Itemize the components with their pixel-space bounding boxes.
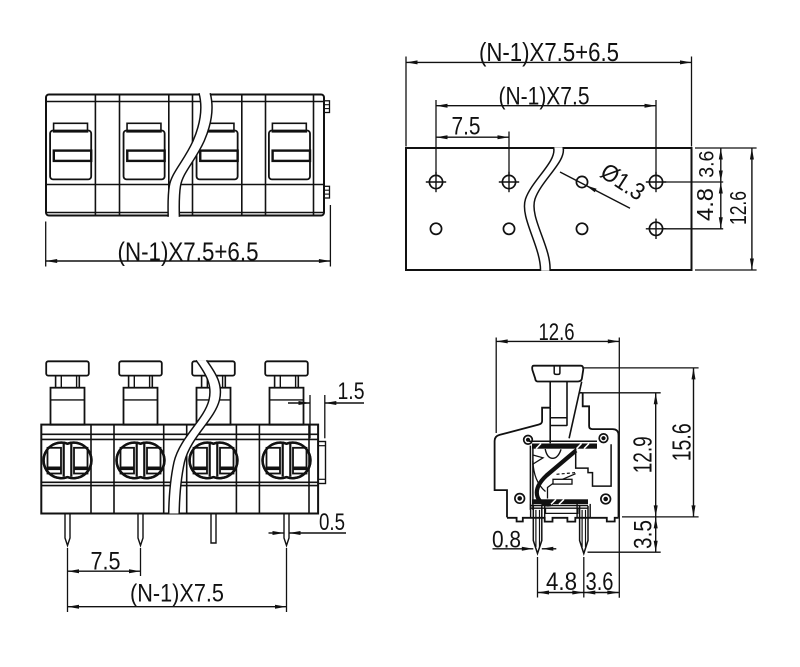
svg-text:(N-1)X7.5: (N-1)X7.5 bbox=[130, 579, 224, 607]
svg-text:3.6: 3.6 bbox=[696, 151, 719, 178]
svg-text:(N-1)X7.5+6.5: (N-1)X7.5+6.5 bbox=[479, 37, 619, 67]
svg-text:12.6: 12.6 bbox=[539, 319, 575, 346]
svg-text:7.5: 7.5 bbox=[452, 113, 481, 141]
svg-text:(N-1)X7.5: (N-1)X7.5 bbox=[499, 82, 590, 110]
svg-text:4.8: 4.8 bbox=[546, 568, 577, 596]
svg-text:7.5: 7.5 bbox=[91, 547, 121, 575]
svg-text:3.5: 3.5 bbox=[630, 520, 658, 549]
svg-text:3.6: 3.6 bbox=[586, 568, 614, 596]
svg-text:15.6: 15.6 bbox=[667, 423, 697, 461]
svg-text:12.9: 12.9 bbox=[628, 436, 658, 473]
svg-text:0.5: 0.5 bbox=[319, 509, 345, 536]
svg-text:12.6: 12.6 bbox=[725, 191, 751, 225]
svg-text:4.8: 4.8 bbox=[692, 188, 718, 221]
svg-text:(N-1)X7.5+6.5: (N-1)X7.5+6.5 bbox=[118, 236, 259, 266]
svg-text:1.5: 1.5 bbox=[338, 378, 365, 405]
svg-text:0.8: 0.8 bbox=[492, 526, 521, 553]
